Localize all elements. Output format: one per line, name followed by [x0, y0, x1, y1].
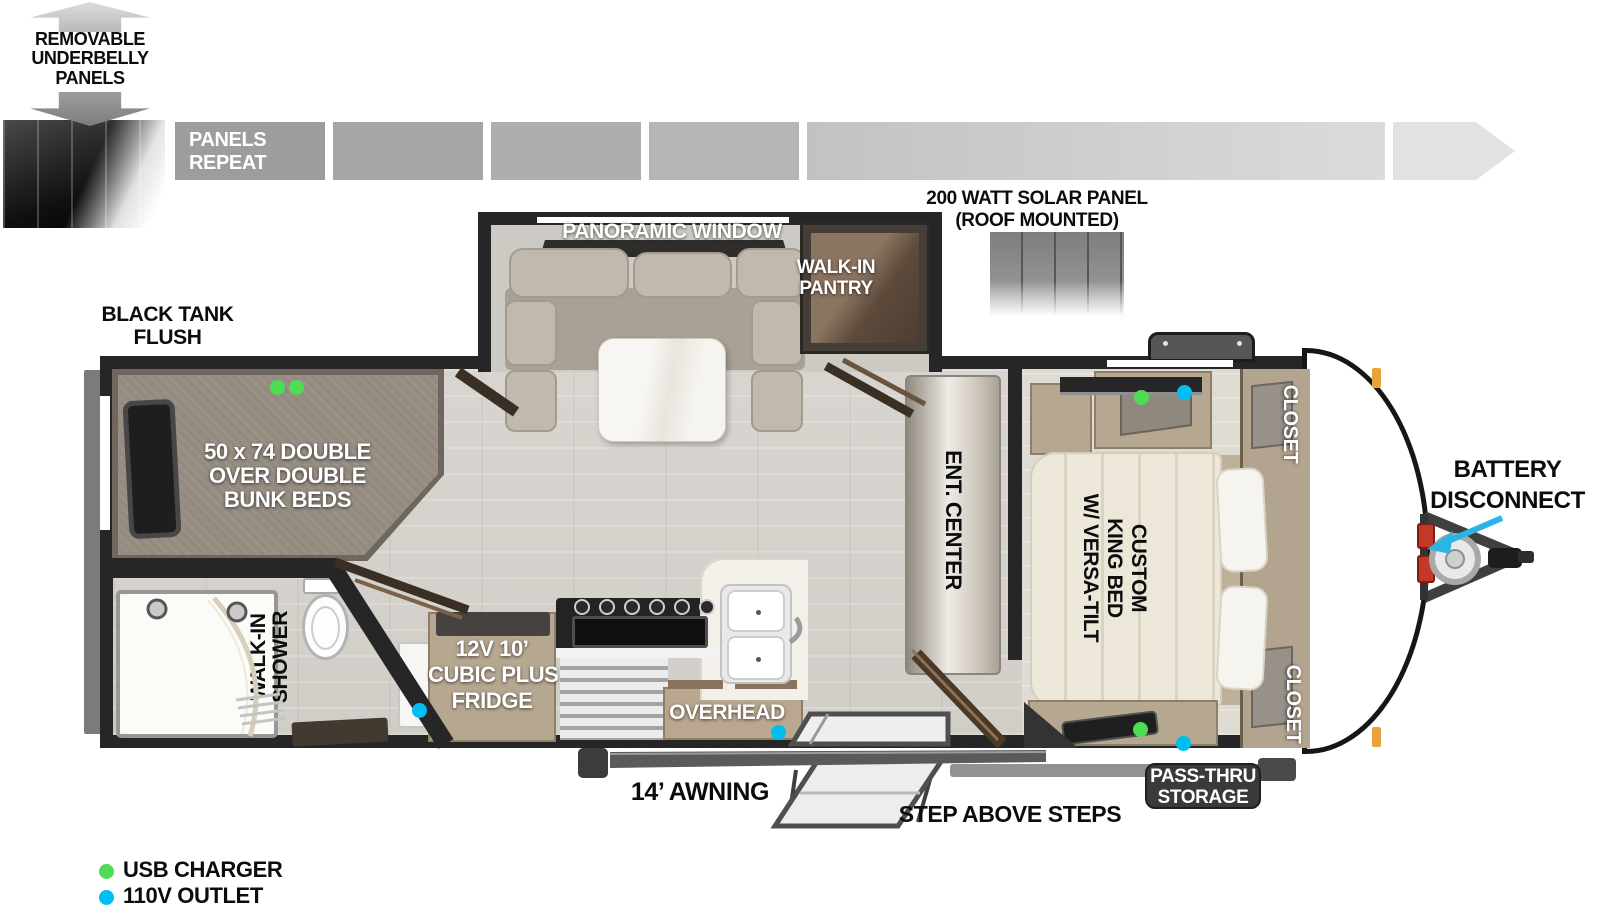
closet-bottom-label: CLOSET: [1279, 644, 1303, 764]
legend-outlet-dot: [99, 890, 114, 905]
pass-thru-latch: [1258, 758, 1296, 781]
battery-disconnect-label: BATTERY DISCONNECT: [1415, 454, 1600, 516]
hitch-a-frame: [1424, 514, 1520, 600]
pantry-line2: PANTRY: [771, 279, 901, 300]
pillow: [1215, 585, 1268, 691]
solar-panel-graphic: [990, 232, 1124, 320]
toilet-tank: [303, 578, 347, 594]
bunk-line3: BUNK BEDS: [170, 488, 405, 512]
usb-charger-dot: [1133, 722, 1148, 737]
oven-window: [572, 616, 708, 648]
bed-line2: KING BED: [1102, 463, 1126, 673]
pass-thru-line1: PASS-THRU: [1145, 767, 1261, 788]
double-sink: [720, 584, 792, 684]
front-cap: [1302, 348, 1430, 754]
sink-basin: [727, 590, 785, 632]
bedroom-partition-wall: [1008, 368, 1022, 660]
underbelly-panel-photo: [3, 120, 165, 228]
panels-repeat-label: PANELS REPEAT: [175, 122, 307, 175]
pass-thru-label: PASS-THRU STORAGE: [1145, 767, 1261, 809]
up-arrow-icon: [30, 2, 150, 32]
outlet-110v-dot: [771, 725, 786, 740]
awning-roller-highlight: [610, 752, 1046, 754]
underbelly-line2: UNDERBELLY: [0, 49, 180, 68]
panoramic-window-label: PANORAMIC WINDOW: [502, 221, 842, 244]
panel-strip-arrow: [1393, 122, 1515, 180]
hitch-coupler-tip: [1518, 551, 1534, 563]
fridge-line1: 12V 10’: [428, 636, 556, 662]
panel-strip-segment-4: [649, 122, 799, 180]
hitch-coupler: [1488, 548, 1522, 568]
bathroom-wall: [100, 558, 338, 578]
pantry-line1: WALK-IN: [771, 258, 901, 279]
propane-tank-icon: [1432, 536, 1478, 582]
battery-arrow-head: [1427, 531, 1453, 554]
bed-line1: CUSTOM: [1126, 463, 1150, 673]
sofa-left-chaise-cushion: [505, 300, 557, 366]
outlet-110v-dot: [1176, 736, 1191, 751]
panel-strip-segment-3: [491, 122, 641, 180]
solar-panel-label: 200 WATT SOLAR PANEL (ROOF MOUNTED): [902, 188, 1172, 233]
wood-trim: [668, 680, 723, 689]
panel-strip-segment-1: PANELS REPEAT: [175, 122, 325, 180]
screw-dot: [1163, 341, 1168, 346]
rv-floorplan-diagram: REMOVABLE UNDERBELLY PANELS PANELS REPEA…: [0, 0, 1600, 908]
battery-arrow-line: [1446, 518, 1502, 542]
fridge-top-panel: [436, 612, 550, 636]
sofa-back-cushion: [509, 248, 629, 298]
usb-charger-dot: [289, 380, 304, 395]
panel-strip-segment-2: [333, 122, 483, 180]
propane-tank-valve: [1446, 550, 1464, 568]
fridge-label: 12V 10’ CUBIC PLUS FRIDGE: [428, 636, 556, 714]
sofa-right-chaise-cushion: [751, 370, 803, 432]
bed-line3: W/ VERSA-TILT: [1078, 463, 1102, 673]
king-bed-label: CUSTOM KING BED W/ VERSA-TILT: [1066, 463, 1150, 673]
toilet-seat: [311, 606, 340, 650]
bedroom-window: [1107, 360, 1233, 367]
battery-line2: DISCONNECT: [1415, 485, 1600, 516]
underbelly-label: REMOVABLE UNDERBELLY PANELS: [0, 30, 180, 88]
legend-usb-label: USB CHARGER: [123, 858, 282, 882]
step-above-steps-label: STEP ABOVE STEPS: [880, 802, 1140, 827]
clearance-light-top: [1372, 368, 1381, 388]
sink-drain: [756, 610, 761, 615]
bunk-label: 50 x 74 DOUBLE OVER DOUBLE BUNK BEDS: [170, 440, 405, 513]
battery-line1: BATTERY: [1415, 454, 1600, 485]
ent-center-label: ENT. CENTER: [939, 420, 965, 620]
shower-line1: WALK-IN: [248, 582, 270, 732]
awning-label: 14’ AWNING: [615, 779, 785, 806]
pass-thru-line2: STORAGE: [1145, 788, 1261, 809]
black-tank-line1: BLACK TANK: [85, 304, 250, 327]
legend-outlet-label: 110V OUTLET: [123, 884, 263, 908]
bunk-line1: 50 x 74 DOUBLE: [170, 440, 405, 464]
sink-drain: [756, 657, 761, 662]
underbelly-line3: PANELS: [0, 69, 180, 88]
outlet-110v-dot: [412, 703, 427, 718]
awning-bracket: [578, 748, 608, 778]
usb-charger-dot: [1134, 390, 1149, 405]
closet-top-label: CLOSET: [1276, 364, 1300, 484]
sink-basin: [727, 636, 785, 680]
underbelly-line1: REMOVABLE: [0, 30, 180, 49]
rear-wall-window: [100, 396, 110, 530]
stove-flange: [556, 648, 726, 658]
outlet-110v-dot: [1177, 385, 1192, 400]
pantry-label: WALK-IN PANTRY: [771, 258, 901, 299]
shower-label: WALK-IN SHOWER: [248, 582, 294, 732]
sofa-back-cushion: [633, 252, 732, 298]
usb-charger-dot: [270, 380, 285, 395]
shower-line2: SHOWER: [270, 582, 292, 732]
screw-dot: [1237, 341, 1242, 346]
dinette-table: [598, 338, 726, 442]
black-tank-line2: FLUSH: [85, 327, 250, 350]
sofa-right-chaise-cushion: [751, 300, 803, 366]
overhead-label: OVERHEAD: [657, 702, 797, 725]
black-tank-flush-label: BLACK TANK FLUSH: [85, 304, 250, 349]
sofa-left-chaise-cushion: [505, 370, 557, 432]
kitchen-drawers: [560, 658, 668, 740]
tv-bracket: [1148, 332, 1255, 362]
solar-line1: 200 WATT SOLAR PANEL: [902, 188, 1172, 210]
bunk-line2: OVER DOUBLE: [170, 464, 405, 488]
panel-strip-segment-5: [807, 122, 1385, 180]
solar-line2: (ROOF MOUNTED): [902, 210, 1172, 232]
legend-usb-dot: [99, 864, 114, 879]
fridge-line3: FRIDGE: [428, 688, 556, 714]
pillow: [1215, 467, 1268, 573]
bathroom-vanity: [291, 718, 388, 747]
clearance-light-bottom: [1372, 727, 1381, 747]
fridge-line2: CUBIC PLUS: [428, 662, 556, 688]
